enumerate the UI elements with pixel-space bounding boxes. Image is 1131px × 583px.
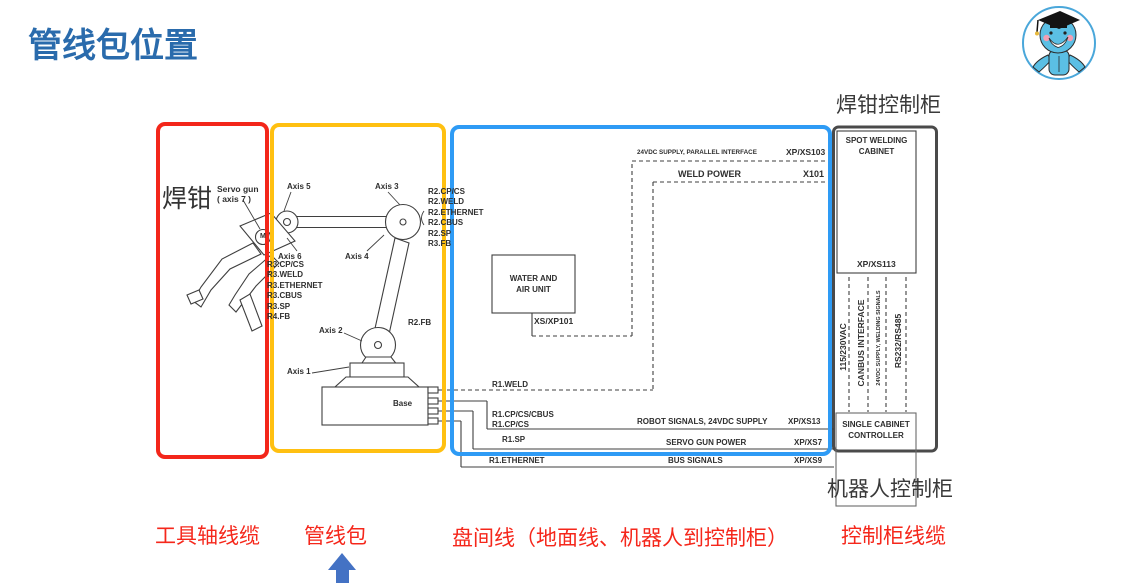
legend-tool-axis-cable: 工具轴线缆 xyxy=(155,520,260,550)
r1-weld-label: R1.WELD xyxy=(492,381,528,389)
axis4-label: Axis 4 xyxy=(345,253,369,261)
bus-115-230vac-label: 115/230VAC xyxy=(838,323,848,371)
single-cabinet-controller-label: SINGLE CABINET CONTROLLER xyxy=(836,419,916,441)
bus-rs232-rs485-label: RS232/RS485 xyxy=(893,314,903,368)
axis3-label: Axis 3 xyxy=(375,183,399,191)
xp-xs7-label: XP/XS7 xyxy=(794,439,822,447)
xp-xs113-label: XP/XS113 xyxy=(857,260,896,269)
xs-xp101-label: XS/XP101 xyxy=(534,317,573,326)
axis1-label: Axis 1 xyxy=(287,368,311,376)
bus-24vdc-welding-label: 24VDC SUPPLY, WELDING SIGNALS xyxy=(876,290,882,385)
r1-cpcs-label: R1.CP/CS xyxy=(492,421,529,429)
r2-cable-list: R2.CP/CS R2.WELD R2.ETHERNET R2.CBUS R2.… xyxy=(428,187,484,249)
legend-panel-lines: 盘间线（地面线、机器人到控制柜） xyxy=(452,522,788,552)
slide: 管线包位置 xyxy=(0,0,1131,583)
xp-xs9-label: XP/XS9 xyxy=(794,457,822,465)
servo-gun-label: Servo gun ( axis 7 ) xyxy=(217,184,259,205)
r2fb-label: R2.FB xyxy=(408,319,431,327)
water-air-unit-label: WATER AND AIR UNIT xyxy=(492,255,575,313)
r3-cable-list: R3.CP/CS R3.WELD R3.ETHERNET R3.CBUS R3.… xyxy=(267,260,323,322)
r1-cpcscbus-label: R1.CP/CS/CBUS xyxy=(492,411,554,419)
gun-cabinet-heading: 焊钳控制柜 xyxy=(836,89,941,119)
axis2-label: Axis 2 xyxy=(319,327,343,335)
legend-cabinet-cable: 控制柜线缆 xyxy=(841,520,946,550)
robot-signals-label: ROBOT SIGNALS, 24VDC SUPPLY xyxy=(637,418,767,426)
gun-label: 焊钳 xyxy=(162,179,212,215)
spot-welding-cabinet-label: SPOT WELDING CABINET xyxy=(837,135,916,157)
legend-dresspack: 管线包 xyxy=(304,520,367,550)
bus-signals-label: BUS SIGNALS xyxy=(668,457,723,465)
x101-label: X101 xyxy=(803,170,824,179)
r1-sp-label: R1.SP xyxy=(502,436,525,444)
base-label: Base xyxy=(393,400,412,408)
bus-canbus-label: CANBUS INTERFACE xyxy=(856,300,866,387)
robot-cabinet-heading: 机器人控制柜 xyxy=(827,473,953,503)
xp-xs13-label: XP/XS13 xyxy=(788,418,820,426)
highlight-box-tool-axis-cable xyxy=(156,122,269,459)
xp-xs103-label: XP/XS103 xyxy=(786,148,825,157)
motor-label: M xyxy=(260,233,266,240)
r1-ethernet-label: R1.ETHERNET xyxy=(489,457,545,465)
supply-parallel-label: 24VDC SUPPLY, PARALLEL INTERFACE xyxy=(637,150,757,157)
axis5-label: Axis 5 xyxy=(287,183,311,191)
up-arrow-icon xyxy=(328,553,356,583)
weld-power-label: WELD POWER xyxy=(678,170,741,179)
servo-gun-power-label: SERVO GUN POWER xyxy=(666,439,746,447)
